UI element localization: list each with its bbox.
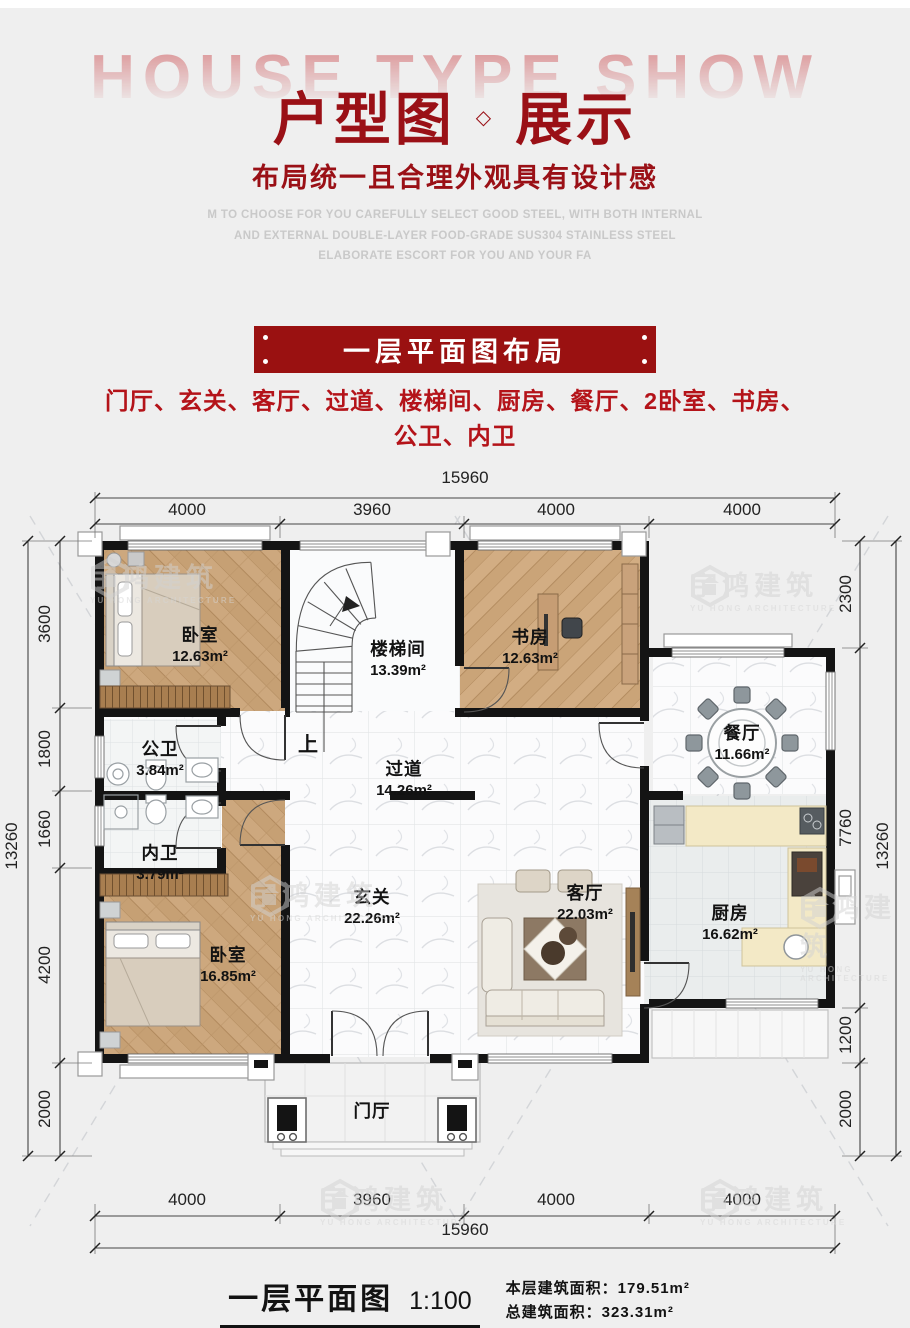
room-area: 12.63m² [135,648,265,665]
area-summary: 本层建筑面积：179.51m² 总建筑面积：323.31m² [506,1274,690,1325]
desc-line: M TO CHOOSE FOR YOU CAREFULLY SELECT GOO… [0,205,910,226]
room-area: 22.26m² [307,910,437,927]
dim-left-seg: 3600 [35,582,55,666]
page-title: 户型图 ◇ 展示 [0,74,910,156]
room-label-dining: 餐厅 11.66m² [677,720,807,763]
dim-left-seg: 4200 [35,923,55,1007]
dim-right-seg: 1200 [836,993,856,1077]
page-title-left: 户型图 [273,74,456,156]
terrace [652,1010,828,1058]
footer: 一层平面图 1:100 本层建筑面积：179.51m² 总建筑面积：323.31… [0,1274,910,1328]
banner-dot [263,359,268,364]
room-area: 3.84m² [95,762,225,779]
desc-line: AND EXTERNAL DOUBLE-LAYER FOOD-GRADE SUS… [0,226,910,247]
plan-name: 一层平面图 [228,1274,393,1318]
room-label-study: 书房 12.63m² [465,624,595,667]
room-name: 公卫 [95,736,225,761]
room-list: 门厅、玄关、客厅、过道、楼梯间、厨房、餐厅、2卧室、书房、 公卫、内卫 [0,384,910,454]
dim-top-seg: 4000 [697,500,787,520]
room-name: 玄关 [307,884,437,909]
floor-area-label: 本层建筑面积： [506,1280,618,1297]
page-title-right: 展示 [515,74,637,156]
floor-area-value: 179.51m² [618,1280,690,1297]
dim-left-seg: 2000 [35,1067,55,1151]
banner-label: 一层平面图布局 [343,330,567,369]
floor-plan: 卧室 12.63m² 楼梯间 13.39m² 书房 12.63m² 餐厅 11.… [0,456,910,1266]
diamond-icon: ◇ [476,105,495,130]
page-subtitle: 布局统一且合理外观具有设计感 [0,156,910,195]
room-area: 16.62m² [665,926,795,943]
room-area: 11.66m² [677,746,807,763]
header: HOUSE TYPE SHOW 户型图 ◇ 展示 布局统一且合理外观具有设计感 … [0,8,910,256]
dim-top-seg: 3960 [327,500,417,520]
room-label-bedroom-2: 卧室 16.85m² [163,942,293,985]
dim-right-seg: 7760 [836,786,856,870]
stairs-up-label: 上 [284,728,332,757]
room-label-bedroom-1: 卧室 12.63m² [135,622,265,665]
dim-bottom-seg: 4000 [511,1190,601,1210]
dim-top-seg: 4000 [142,500,232,520]
total-area-label: 总建筑面积： [506,1304,602,1321]
banner-dot [642,335,647,340]
banner-dot [642,359,647,364]
room-area: 13.39m² [333,662,463,679]
room-name: 卧室 [135,622,265,647]
room-label-foyer: 玄关 22.26m² [307,884,437,927]
room-name: 书房 [465,624,595,649]
room-label-corridor: 过道 14.26m² [339,756,469,799]
dim-right-seg: 2300 [836,552,856,636]
desc-line: ELABORATE ESCORT FOR YOU AND YOUR FA [0,246,910,267]
room-area: 16.85m² [163,968,293,985]
room-name: 门厅 [307,1098,437,1123]
dim-right-seg: 2000 [836,1067,856,1151]
dim-left-seg: 1800 [35,707,55,791]
dim-left-seg: 1660 [35,787,55,871]
room-area: 3.79m² [95,866,225,883]
banner-dot [263,335,268,340]
dim-bottom-seg: 4000 [697,1190,787,1210]
room-name: 餐厅 [677,720,807,745]
room-label-living: 客厅 22.03m² [520,880,650,923]
room-name: 楼梯间 [333,636,463,661]
total-area-value: 323.31m² [602,1304,674,1321]
room-name: 客厅 [520,880,650,905]
room-name: 厨房 [665,900,795,925]
room-list-line: 公卫、内卫 [0,419,910,454]
header-description: M TO CHOOSE FOR YOU CAREFULLY SELECT GOO… [0,205,910,267]
room-name: 内卫 [95,840,225,865]
room-label-kitchen: 厨房 16.62m² [665,900,795,943]
dim-right-total: 13260 [873,804,893,888]
floor-area-line: 本层建筑面积：179.51m² [506,1277,690,1301]
plan-title-block: 一层平面图 1:100 [220,1274,480,1328]
dim-bottom-total: 15960 [95,1220,835,1240]
room-label-public-bath: 公卫 3.84m² [95,736,225,779]
dim-bottom-seg: 4000 [142,1190,232,1210]
dim-bottom-seg: 3960 [327,1190,417,1210]
top-strip [0,0,910,8]
room-area: 12.63m² [465,650,595,667]
dim-left-total: 13260 [2,804,22,888]
dim-top-seg: 4000 [511,500,601,520]
total-area-line: 总建筑面积：323.31m² [506,1301,690,1325]
room-area: 14.26m² [339,782,469,799]
room-name: 卧室 [163,942,293,967]
poster-page: HOUSE TYPE SHOW 户型图 ◇ 展示 布局统一且合理外观具有设计感 … [0,0,910,1328]
section-banner: 一层平面图布局 [254,326,656,373]
room-name: 过道 [339,756,469,781]
dim-top-total: 15960 [95,468,835,488]
room-label-private-bath: 内卫 3.79m² [95,840,225,883]
room-list-line: 门厅、玄关、客厅、过道、楼梯间、厨房、餐厅、2卧室、书房、 [0,384,910,419]
plan-scale: 1:100 [409,1287,472,1316]
room-label-stairwell: 楼梯间 13.39m² [333,636,463,679]
room-label-entrance-hall: 门厅 [307,1098,437,1123]
room-area: 22.03m² [520,906,650,923]
